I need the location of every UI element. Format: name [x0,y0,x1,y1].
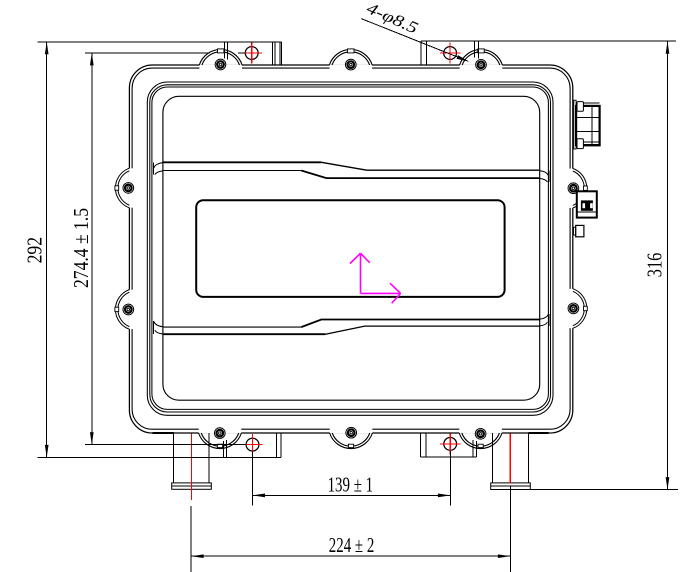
svg-text:139 ± 1: 139 ± 1 [328,473,374,497]
svg-text:292: 292 [23,237,47,264]
svg-text:274.4 ± 1.5: 274.4 ± 1.5 [69,208,93,288]
svg-text:316: 316 [643,253,667,278]
svg-text:224 ± 2: 224 ± 2 [329,533,375,557]
